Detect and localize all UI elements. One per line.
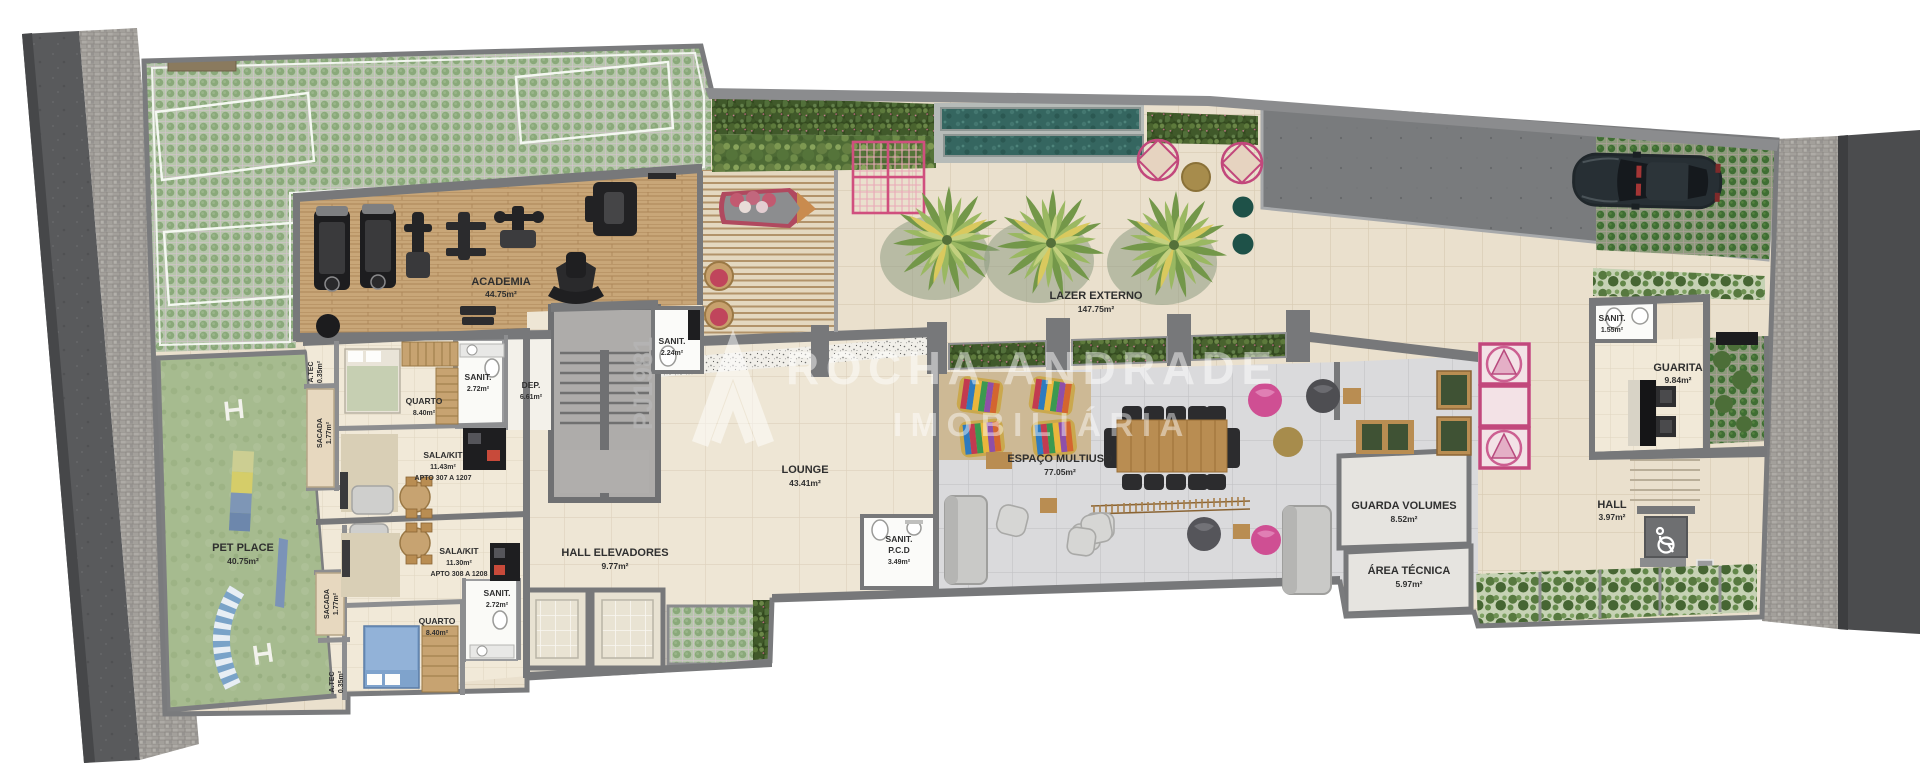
svg-text:8.40m²: 8.40m² [426, 630, 449, 637]
svg-text:SALA/KIT: SALA/KIT [439, 546, 479, 556]
svg-text:GUARITA: GUARITA [1653, 362, 1702, 374]
svg-text:SANIT.: SANIT. [886, 534, 913, 544]
svg-text:SANIT.: SANIT. [465, 372, 492, 382]
svg-text:1.77m²: 1.77m² [333, 592, 340, 615]
svg-text:A.TEC: A.TEC [308, 362, 315, 383]
svg-text:44.75m²: 44.75m² [485, 289, 517, 299]
svg-text:40.75m²: 40.75m² [227, 556, 259, 566]
svg-text:2.24m²: 2.24m² [661, 350, 684, 357]
svg-text:QUARTO: QUARTO [406, 396, 443, 406]
svg-text:11.30m²: 11.30m² [446, 560, 472, 567]
svg-text:3.97m²: 3.97m² [1599, 512, 1626, 522]
svg-text:GUARDA VOLUMES: GUARDA VOLUMES [1351, 500, 1456, 512]
svg-text:PJ1981: PJ1981 [628, 337, 658, 430]
svg-text:LOUNGE: LOUNGE [781, 464, 828, 476]
svg-text:ACADEMIA: ACADEMIA [471, 276, 530, 288]
svg-text:77.05m²: 77.05m² [1044, 467, 1076, 477]
svg-text:SANIT.: SANIT. [1599, 313, 1626, 323]
svg-text:11.43m²: 11.43m² [430, 464, 456, 471]
svg-text:0.35m²: 0.35m² [317, 360, 324, 383]
svg-text:HALL: HALL [1597, 499, 1627, 511]
svg-text:9.84m²: 9.84m² [1665, 375, 1692, 385]
svg-text:5.97m²: 5.97m² [1396, 579, 1423, 589]
svg-text:8.40m²: 8.40m² [413, 410, 436, 417]
svg-text:A.TEC: A.TEC [329, 672, 336, 693]
svg-text:1.77m²: 1.77m² [326, 421, 333, 444]
svg-text:8.52m²: 8.52m² [1391, 514, 1418, 524]
svg-text:3.49m²: 3.49m² [888, 559, 911, 566]
svg-text:SACADA: SACADA [317, 418, 324, 448]
svg-text:9.77m²: 9.77m² [602, 561, 629, 571]
svg-text:43.41m²: 43.41m² [789, 478, 821, 488]
svg-text:P.C.D: P.C.D [888, 545, 910, 555]
svg-text:QUARTO: QUARTO [419, 616, 456, 626]
svg-text:ESPAÇO MULTIUSO: ESPAÇO MULTIUSO [1007, 453, 1113, 465]
svg-text:6.61m²: 6.61m² [520, 394, 543, 401]
svg-text:LAZER EXTERNO: LAZER EXTERNO [1050, 290, 1143, 302]
svg-text:ROCHA ANDRADE: ROCHA ANDRADE [786, 342, 1279, 394]
svg-text:0.35m²: 0.35m² [338, 670, 345, 693]
svg-text:1.55m²: 1.55m² [1601, 327, 1624, 334]
svg-text:SALA/KIT: SALA/KIT [423, 450, 463, 460]
svg-text:APTO 308 A 1208: APTO 308 A 1208 [431, 571, 488, 578]
svg-text:SANIT.: SANIT. [659, 336, 686, 346]
svg-text:SANIT.: SANIT. [484, 588, 511, 598]
svg-text:APTO 307 A 1207: APTO 307 A 1207 [415, 475, 472, 482]
svg-text:PET PLACE: PET PLACE [212, 542, 274, 554]
svg-text:147.75m²: 147.75m² [1078, 304, 1115, 314]
svg-text:HALL ELEVADORES: HALL ELEVADORES [561, 547, 668, 559]
svg-text:SACADA: SACADA [324, 589, 331, 619]
svg-text:2.72m²: 2.72m² [467, 386, 490, 393]
svg-text:ÁREA TÉCNICA: ÁREA TÉCNICA [1368, 564, 1451, 577]
svg-text:IMOBILIÁRIA: IMOBILIÁRIA [893, 406, 1192, 443]
svg-text:DEP.: DEP. [522, 380, 541, 390]
svg-text:2.72m²: 2.72m² [486, 602, 509, 609]
